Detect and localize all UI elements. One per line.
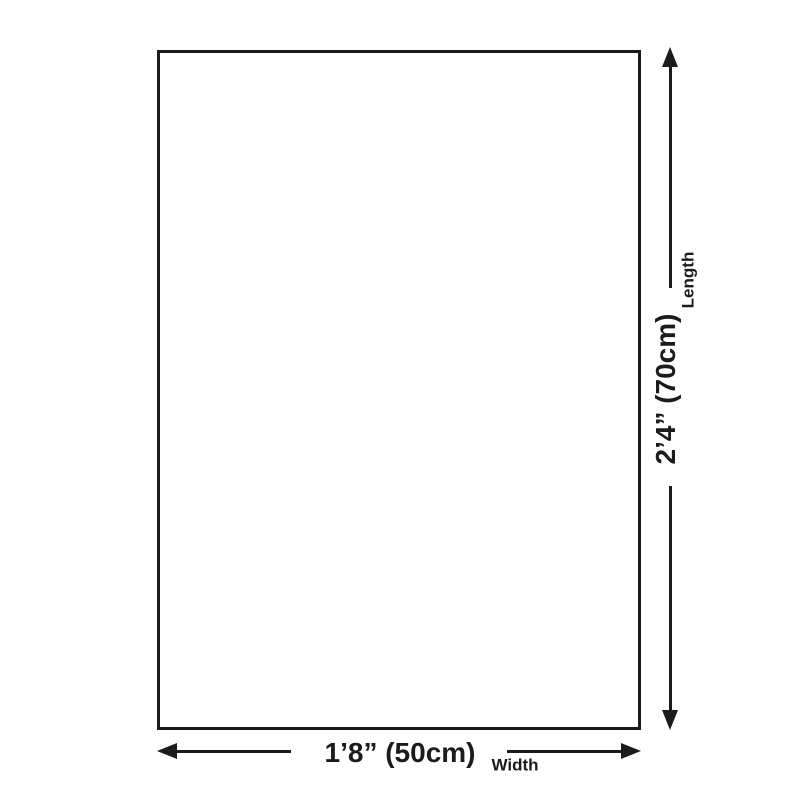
width-dimension-line-left xyxy=(170,750,291,753)
length-dimension-line-upper xyxy=(669,60,672,288)
width-label: Width xyxy=(491,757,538,774)
width-dimension-line-right xyxy=(507,750,629,753)
arrowhead-down-icon xyxy=(662,710,678,730)
width-value: 1’8” (50cm) xyxy=(325,739,476,767)
product-outline xyxy=(157,50,641,730)
arrowhead-right-icon xyxy=(621,743,641,759)
length-label: Length xyxy=(680,252,697,309)
dimension-diagram: 2’4” (70cm) Length 1’8” (50cm) Width xyxy=(0,0,800,800)
length-value: 2’4” (70cm) xyxy=(652,314,680,465)
length-dimension-line-lower xyxy=(669,486,672,718)
